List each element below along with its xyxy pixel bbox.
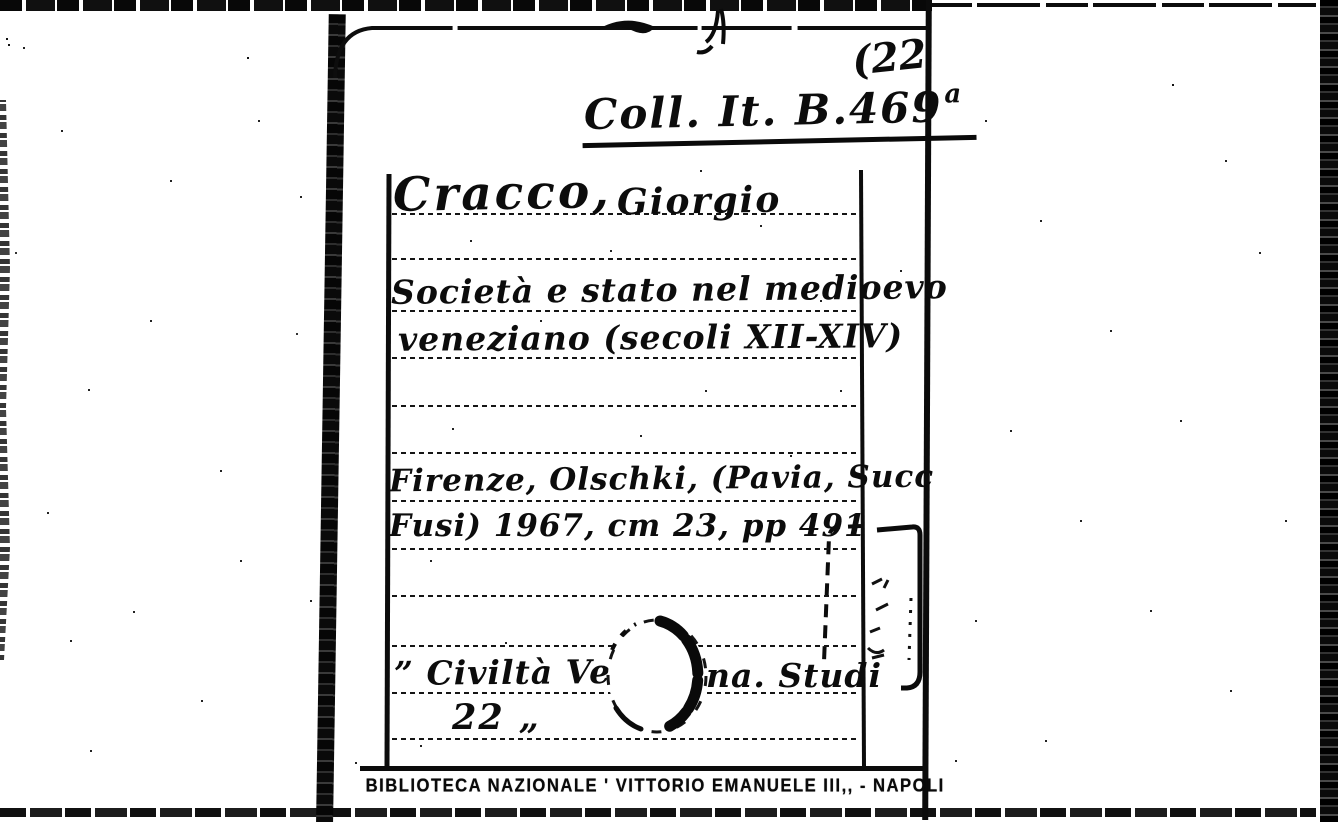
punch-hole	[0, 0, 1338, 822]
catalog-card-scan: (22 Coll. It. B.469a Cracco, Giorgio Soc…	[0, 0, 1338, 822]
